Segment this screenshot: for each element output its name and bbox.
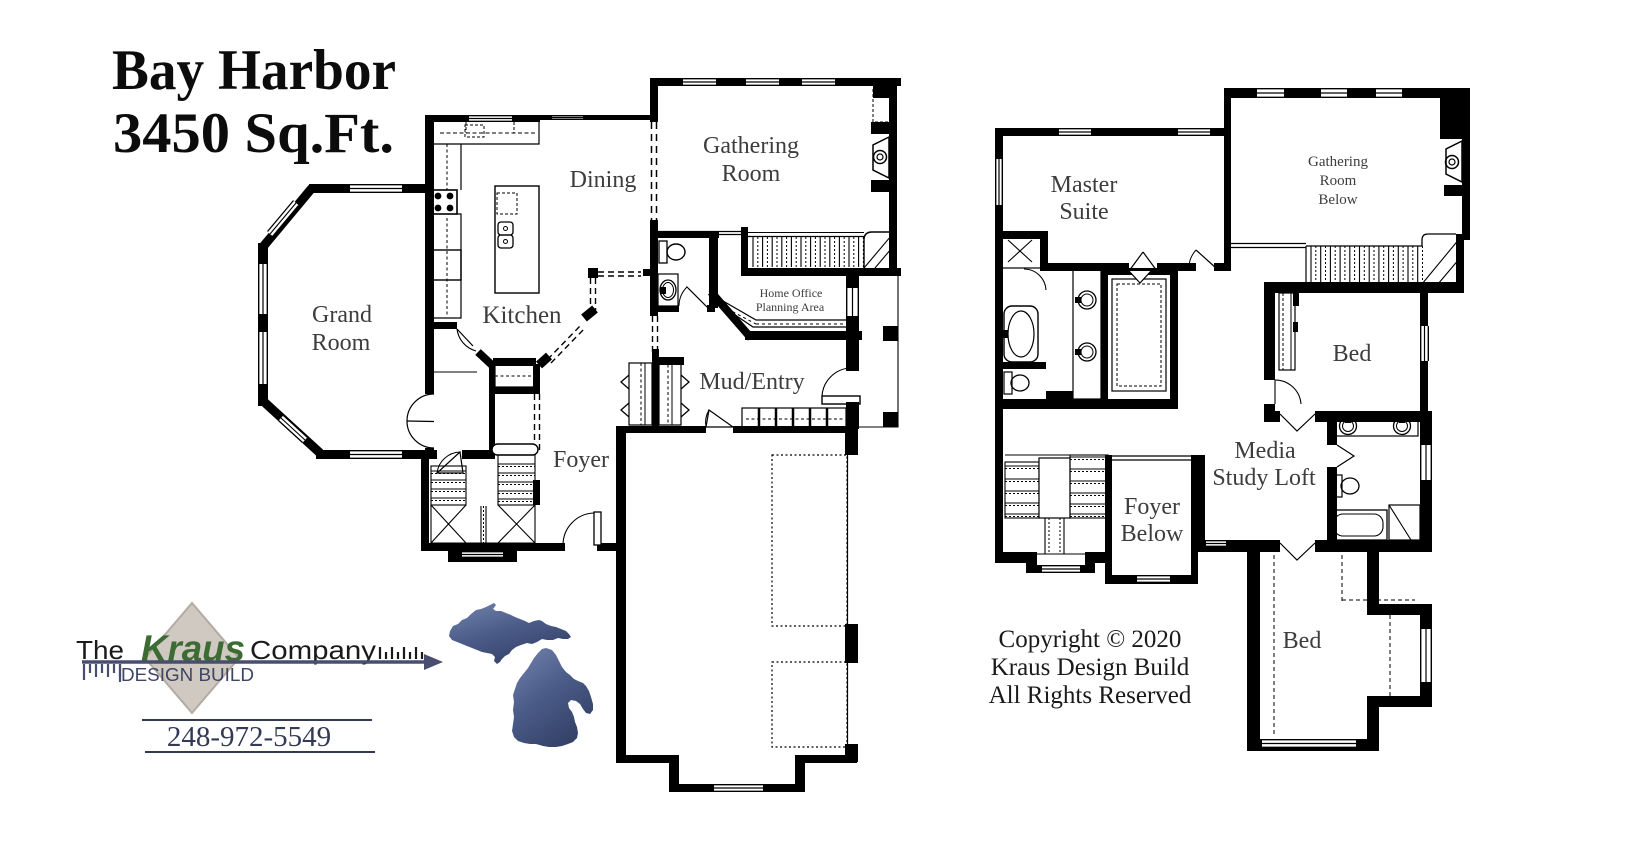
svg-text:Planning Area: Planning Area xyxy=(756,300,825,314)
svg-text:Gathering: Gathering xyxy=(1308,154,1368,170)
svg-text:3450 Sq.Ft.: 3450 Sq.Ft. xyxy=(113,102,394,165)
svg-text:Foyer: Foyer xyxy=(1124,494,1180,520)
svg-text:Kraus Design Build: Kraus Design Build xyxy=(991,654,1190,681)
svg-text:Foyer: Foyer xyxy=(553,447,609,473)
svg-text:Room: Room xyxy=(312,330,371,356)
svg-text:Below: Below xyxy=(1121,521,1184,547)
svg-text:Bed: Bed xyxy=(1333,341,1372,367)
svg-text:Home Office: Home Office xyxy=(760,286,823,300)
svg-text:Master: Master xyxy=(1051,172,1118,198)
svg-text:Suite: Suite xyxy=(1059,199,1108,225)
svg-text:Kitchen: Kitchen xyxy=(482,302,562,329)
svg-text:All Rights Reserved: All Rights Reserved xyxy=(989,682,1192,709)
svg-text:Study Loft: Study Loft xyxy=(1212,465,1316,491)
svg-text:Mud/Entry: Mud/Entry xyxy=(699,369,804,395)
svg-text:Room: Room xyxy=(1320,173,1357,189)
svg-text:Media: Media xyxy=(1234,438,1296,464)
svg-text:Dining: Dining xyxy=(570,167,637,193)
svg-text:Gathering: Gathering xyxy=(703,133,799,159)
svg-text:Copyright © 2020: Copyright © 2020 xyxy=(999,626,1182,653)
svg-text:Grand: Grand xyxy=(312,302,372,328)
svg-text:DESIGN BUILD: DESIGN BUILD xyxy=(121,665,254,685)
svg-text:Bay Harbor: Bay Harbor xyxy=(112,39,396,102)
svg-text:Below: Below xyxy=(1318,192,1357,208)
svg-text:Room: Room xyxy=(722,161,781,187)
svg-text:248-972-5549: 248-972-5549 xyxy=(167,721,331,753)
svg-text:Bed: Bed xyxy=(1283,628,1322,654)
